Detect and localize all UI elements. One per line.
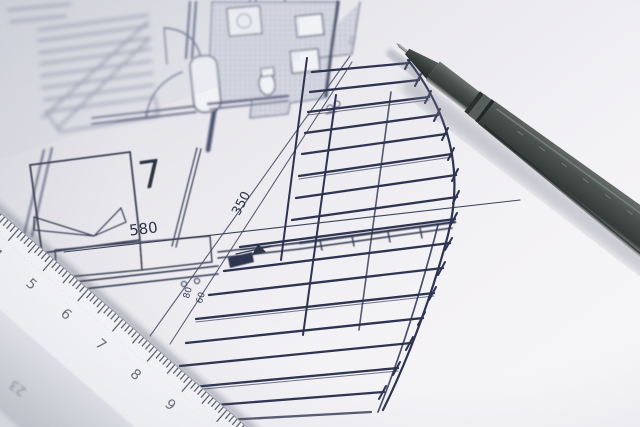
blueprint-photo: 580 350 80 60 85 7 (0, 0, 640, 427)
photo-scene: 580 350 80 60 85 7 (0, 0, 640, 427)
